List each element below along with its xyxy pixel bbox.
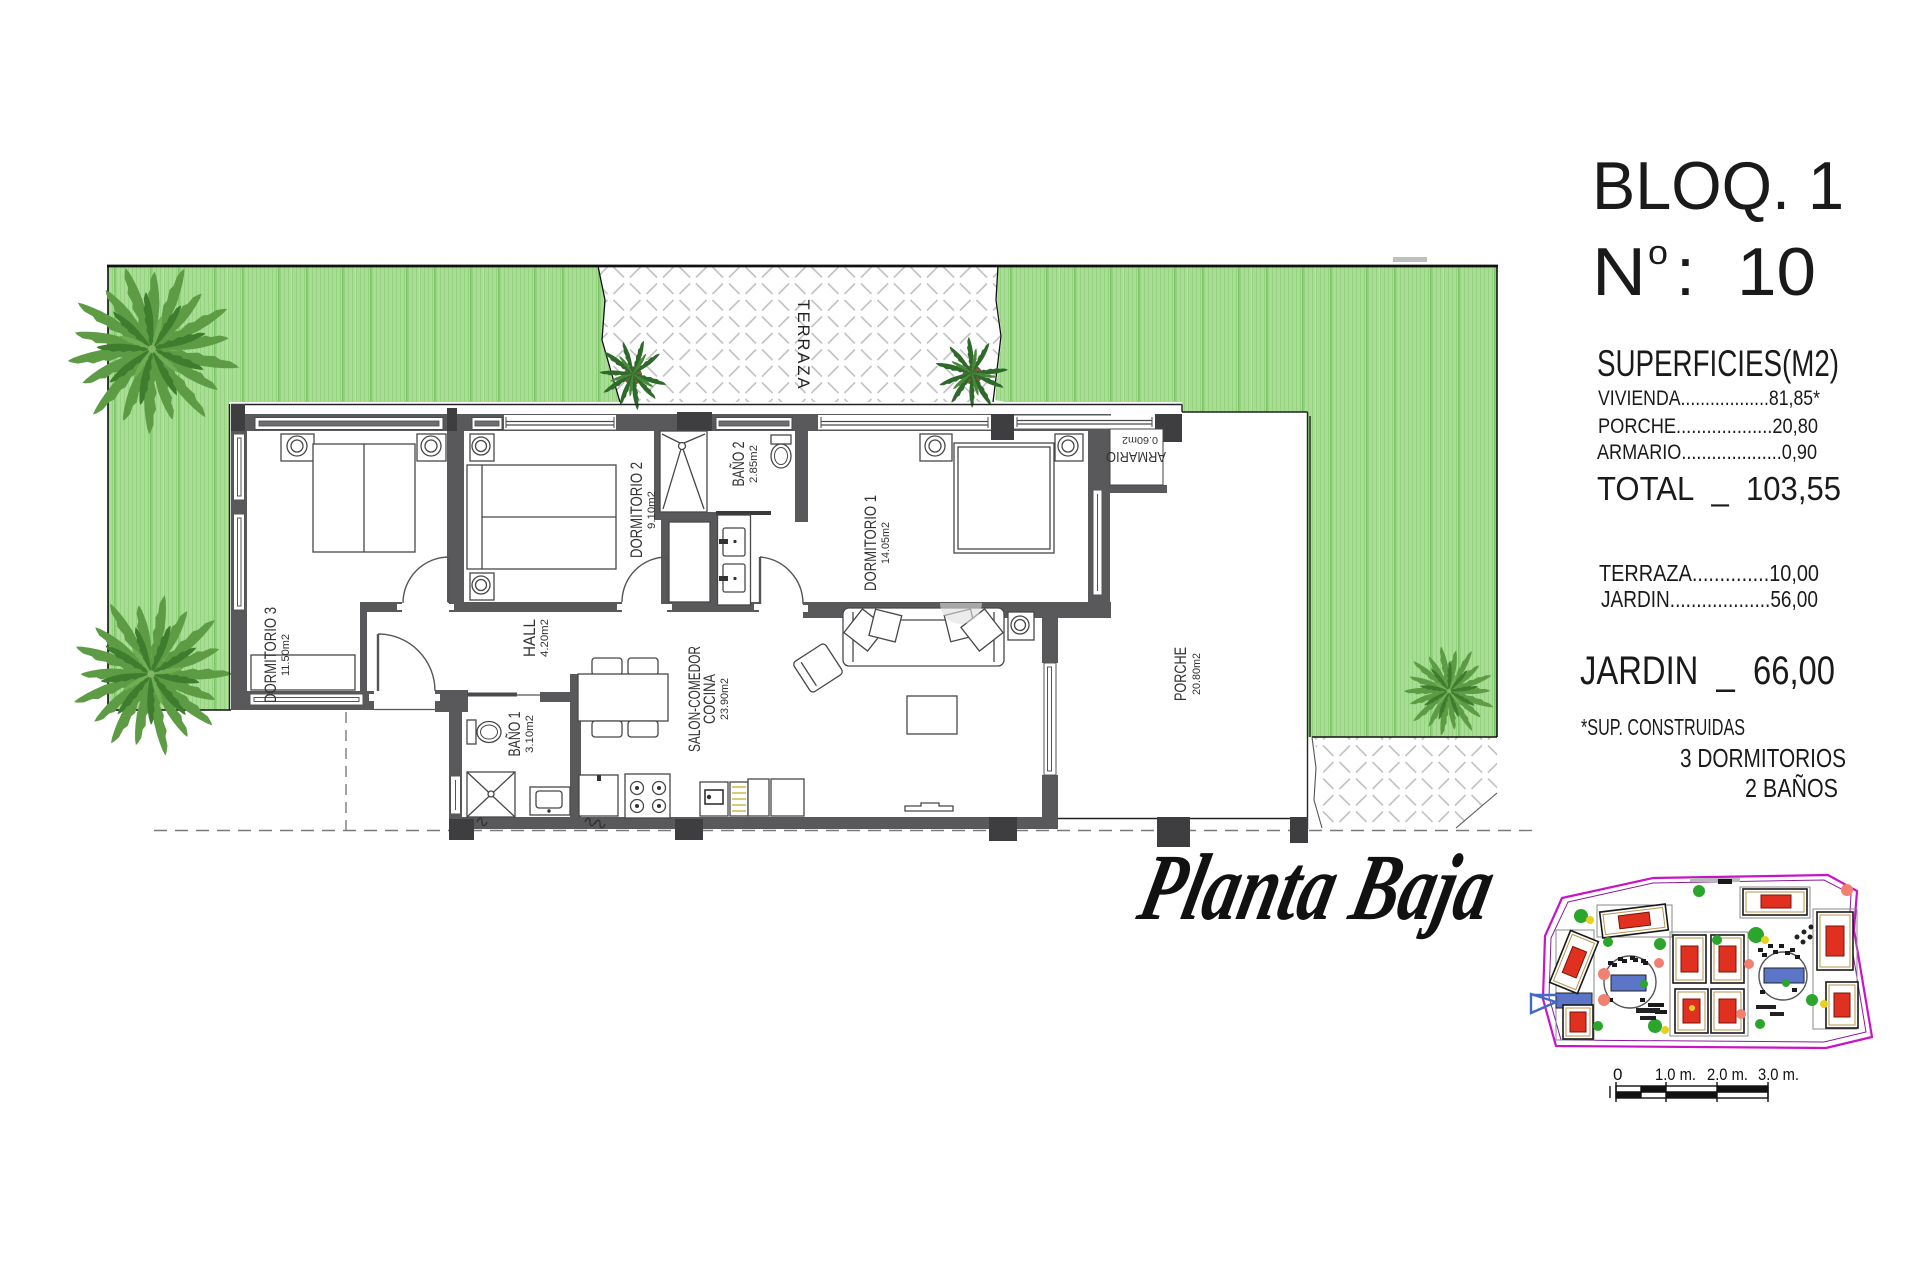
svg-text:BAÑO 2: BAÑO 2 xyxy=(729,442,748,487)
svg-text:0.60m2: 0.60m2 xyxy=(1122,434,1158,445)
svg-text:0: 0 xyxy=(1613,1065,1622,1084)
svg-text:10: 10 xyxy=(1737,234,1816,310)
svg-text::: : xyxy=(1676,234,1695,310)
svg-text:VIVIENDA..................81,8: VIVIENDA..................81,85* xyxy=(1598,387,1820,410)
svg-text:TERRAZA..............10,00: TERRAZA..............10,00 xyxy=(1599,560,1819,586)
svg-text:3 DORMITORIOS: 3 DORMITORIOS xyxy=(1680,743,1846,773)
svg-text:HALL: HALL xyxy=(520,619,539,657)
svg-text:DORMITORIO 2: DORMITORIO 2 xyxy=(627,462,646,558)
svg-text:ARMARIO: ARMARIO xyxy=(1106,448,1166,465)
svg-text:DORMITORIO 3: DORMITORIO 3 xyxy=(261,607,280,703)
svg-text:11.50m2: 11.50m2 xyxy=(280,634,292,676)
svg-text:JARDIN _ 66,00: JARDIN _ 66,00 xyxy=(1580,649,1835,693)
svg-text:PORCHE: PORCHE xyxy=(1171,647,1190,701)
svg-text:JARDIN...................56,00: JARDIN...................56,00 xyxy=(1601,586,1818,612)
svg-text:2.85m2: 2.85m2 xyxy=(748,445,760,483)
svg-text:ARMARIO....................0,9: ARMARIO....................0,90 xyxy=(1597,441,1817,464)
svg-text:TOTAL _ 103,55: TOTAL _ 103,55 xyxy=(1597,470,1841,507)
svg-text:TERRAZA: TERRAZA xyxy=(794,299,812,390)
svg-text:1.0 m.: 1.0 m. xyxy=(1655,1065,1696,1084)
svg-text:23.90m2: 23.90m2 xyxy=(719,678,731,720)
svg-text:*SUP. CONSTRUIDAS: *SUP. CONSTRUIDAS xyxy=(1581,714,1745,740)
svg-text:2 BAÑOS: 2 BAÑOS xyxy=(1745,773,1838,803)
svg-text:COCINA: COCINA xyxy=(700,674,719,724)
svg-text:2.0 m.: 2.0 m. xyxy=(1707,1065,1748,1084)
svg-text:BAÑO 1: BAÑO 1 xyxy=(505,712,524,757)
svg-text:o: o xyxy=(1648,234,1668,272)
svg-text:4.20m2: 4.20m2 xyxy=(539,619,551,657)
svg-text:Planta Baja: Planta Baja xyxy=(1129,834,1504,940)
svg-text:SUPERFICIES(M2): SUPERFICIES(M2) xyxy=(1597,343,1839,384)
svg-text:BLOQ. 1: BLOQ. 1 xyxy=(1592,148,1844,224)
svg-text:N: N xyxy=(1592,234,1646,310)
svg-text:3.0 m.: 3.0 m. xyxy=(1758,1065,1799,1084)
svg-text:PORCHE...................20,80: PORCHE...................20,80 xyxy=(1598,415,1818,438)
svg-text:DORMITORIO 1: DORMITORIO 1 xyxy=(861,495,880,591)
svg-text:9.10m2: 9.10m2 xyxy=(646,491,658,529)
svg-text:20.80m2: 20.80m2 xyxy=(1191,653,1203,695)
svg-text:3.10m2: 3.10m2 xyxy=(524,715,536,753)
svg-text:14.05m2: 14.05m2 xyxy=(880,522,892,564)
